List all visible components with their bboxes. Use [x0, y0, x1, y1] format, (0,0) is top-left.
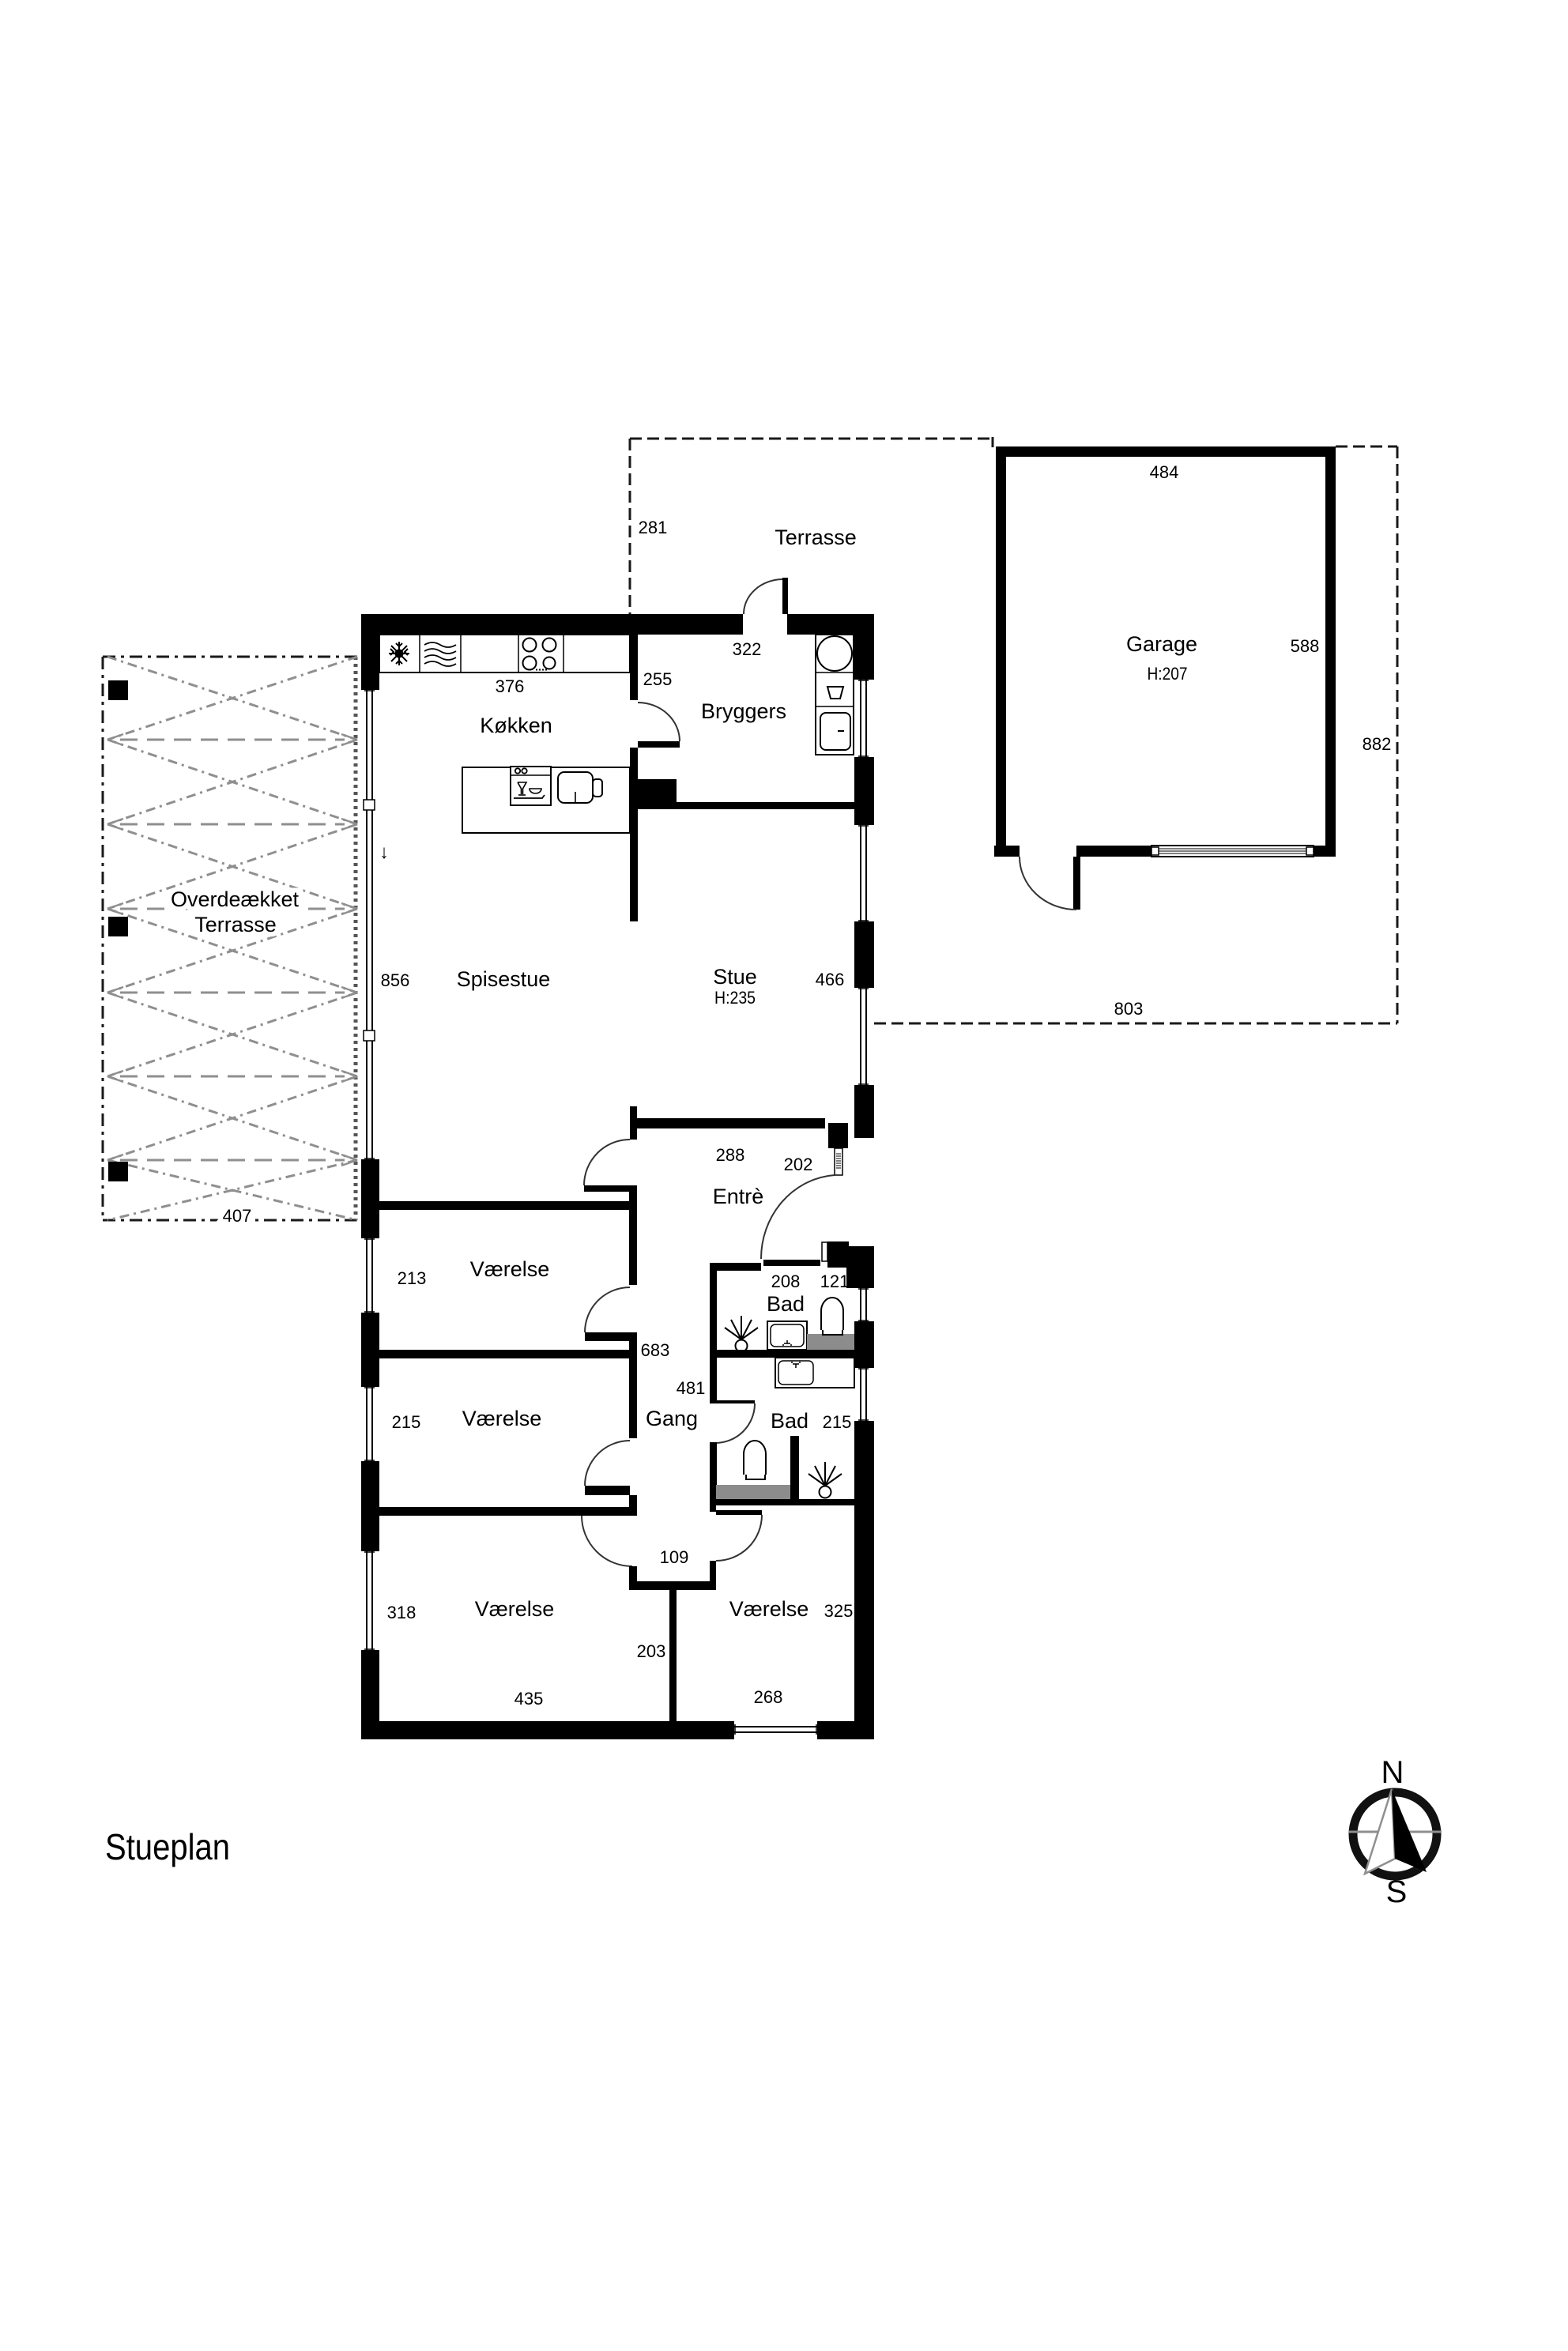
- svg-text:Entrè: Entrè: [713, 1185, 764, 1208]
- svg-text:Overdeækket: Overdeækket: [171, 887, 300, 911]
- svg-text:882: 882: [1363, 734, 1392, 754]
- svg-text:288: 288: [716, 1145, 745, 1165]
- svg-text:S: S: [1386, 1874, 1408, 1909]
- svg-text:109: 109: [660, 1547, 689, 1567]
- svg-text:281: 281: [639, 518, 668, 537]
- svg-text:Stueplan: Stueplan: [105, 1826, 230, 1867]
- svg-text:268: 268: [754, 1687, 783, 1707]
- svg-text:202: 202: [784, 1155, 813, 1174]
- svg-text:435: 435: [514, 1689, 544, 1709]
- svg-text:Terrasse: Terrasse: [775, 526, 857, 549]
- svg-text:318: 318: [387, 1603, 416, 1622]
- svg-text:Bryggers: Bryggers: [701, 699, 786, 723]
- svg-text:856: 856: [381, 970, 410, 990]
- svg-text:322: 322: [733, 639, 762, 659]
- svg-text:Bad: Bad: [771, 1409, 808, 1433]
- svg-text:Garage: Garage: [1126, 632, 1197, 656]
- svg-text:325: 325: [824, 1601, 854, 1621]
- svg-text:213: 213: [398, 1268, 427, 1288]
- svg-text:255: 255: [643, 669, 673, 689]
- svg-text:215: 215: [823, 1412, 852, 1432]
- svg-text:Bad: Bad: [767, 1292, 805, 1316]
- svg-text:407: 407: [223, 1206, 252, 1226]
- svg-text:215: 215: [392, 1412, 421, 1432]
- svg-text:H:235: H:235: [714, 988, 756, 1008]
- svg-text:N: N: [1381, 1755, 1404, 1790]
- svg-text:Spisestue: Spisestue: [457, 967, 551, 991]
- svg-text:↓: ↓: [379, 842, 389, 863]
- svg-text:481: 481: [677, 1378, 706, 1398]
- svg-text:Stue: Stue: [713, 965, 757, 989]
- svg-text:121: 121: [820, 1272, 850, 1291]
- svg-text:683: 683: [641, 1340, 670, 1360]
- svg-text:Terrasse: Terrasse: [194, 913, 277, 936]
- svg-text:484: 484: [1150, 462, 1179, 482]
- svg-text:Værelse: Værelse: [475, 1597, 555, 1621]
- svg-text:H:207: H:207: [1148, 664, 1188, 684]
- svg-text:208: 208: [771, 1272, 801, 1291]
- svg-text:Værelse: Værelse: [470, 1257, 550, 1281]
- svg-text:203: 203: [637, 1641, 666, 1661]
- svg-text:376: 376: [496, 676, 525, 696]
- svg-text:588: 588: [1291, 636, 1320, 656]
- svg-text:466: 466: [816, 970, 845, 989]
- svg-text:803: 803: [1114, 999, 1144, 1019]
- svg-text:Køkken: Køkken: [480, 714, 552, 737]
- svg-text:Gang: Gang: [646, 1407, 698, 1430]
- svg-text:Værelse: Værelse: [729, 1597, 809, 1621]
- svg-text:Værelse: Værelse: [462, 1407, 542, 1430]
